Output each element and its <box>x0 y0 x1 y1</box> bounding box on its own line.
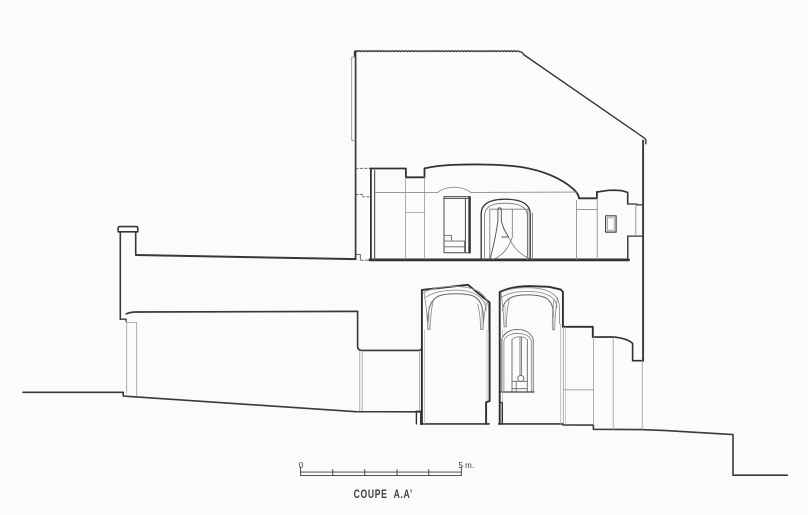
svg-text:5 m.: 5 m. <box>459 461 475 470</box>
svg-text:COUPE A.A’: COUPE A.A’ <box>354 489 413 502</box>
svg-text:0: 0 <box>299 461 304 470</box>
